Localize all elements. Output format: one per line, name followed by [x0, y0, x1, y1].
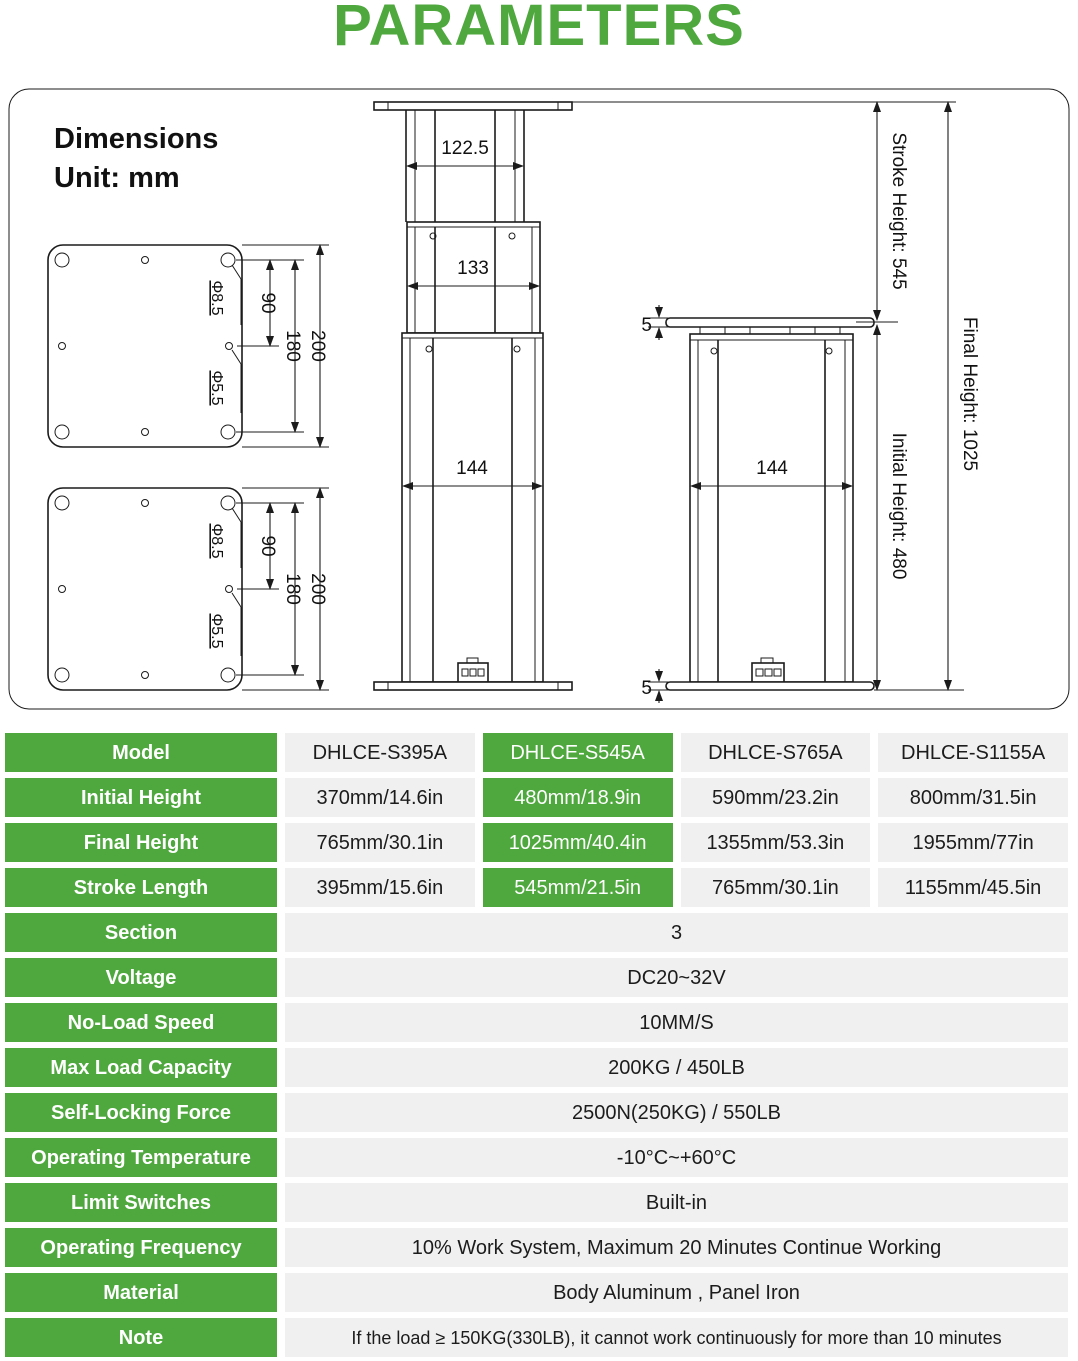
value-cell-highlighted: 545mm/21.5in — [483, 868, 673, 907]
value-cell: 765mm/30.1in — [285, 823, 475, 862]
plate-thickness-bottom-label: 5 — [641, 678, 652, 699]
diagram-unit: Unit: mm — [54, 162, 180, 194]
table-row-operating-frequency: Operating Frequency 10% Work System, Max… — [5, 1228, 1068, 1267]
model-cell: DHLCE-S1155A — [878, 733, 1068, 772]
row-label: Max Load Capacity — [5, 1048, 277, 1087]
plate-size-200-label: 200 — [307, 573, 328, 605]
row-label: No-Load Speed — [5, 1003, 277, 1042]
value-cell: 2500N(250KG) / 550LB — [285, 1093, 1068, 1132]
table-row-limit-switches: Limit Switches Built-in — [5, 1183, 1068, 1222]
value-cell-highlighted: 1025mm/40.4in — [483, 823, 673, 862]
value-cell: DC20~32V — [285, 958, 1068, 997]
stroke-height-label: Stroke Height: 545 — [888, 132, 909, 289]
hole-diameter-small-label: Φ5.5 — [208, 613, 225, 648]
hole-spacing-90-label: 90 — [257, 535, 278, 556]
value-cell: 1155mm/45.5in — [878, 868, 1068, 907]
mounting-plate-bottom-drawing: Φ8.5 Φ5.5 90 180 200 — [48, 488, 329, 690]
table-row-model: Model DHLCE-S395A DHLCE-S545A DHLCE-S765… — [5, 733, 1068, 772]
hole-spacing-180-label: 180 — [282, 573, 303, 605]
table-row-no-load-speed: No-Load Speed 10MM/S — [5, 1003, 1068, 1042]
value-cell: 1955mm/77in — [878, 823, 1068, 862]
bottom-tube-width-label: 144 — [456, 458, 488, 479]
row-label: Limit Switches — [5, 1183, 277, 1222]
table-row-section: Section 3 — [5, 913, 1068, 952]
table-row-voltage: Voltage DC20~32V — [5, 958, 1068, 997]
table-row-material: Material Body Aluminum , Panel Iron — [5, 1273, 1068, 1312]
mid-tube-width-label: 133 — [457, 258, 489, 279]
dimensions-diagram: Dimensions Unit: mm Φ8.5 Φ5.5 90 180 200… — [6, 86, 1072, 714]
table-row-note: Note If the load ≥ 150KG(330LB), it cann… — [5, 1318, 1068, 1357]
table-row-operating-temperature: Operating Temperature -10°C~+60°C — [5, 1138, 1068, 1177]
row-label: Operating Frequency — [5, 1228, 277, 1267]
table-row-stroke-length: Stroke Length 395mm/15.6in 545mm/21.5in … — [5, 868, 1068, 907]
value-cell: 395mm/15.6in — [285, 868, 475, 907]
row-label: Voltage — [5, 958, 277, 997]
collapsed-width-label: 144 — [756, 458, 788, 479]
row-label: Model — [5, 733, 277, 772]
collapsed-column-drawing: 144 5 5 — [641, 305, 874, 703]
hole-diameter-large-label: Φ8.5 — [208, 523, 225, 558]
value-cell: -10°C~+60°C — [285, 1138, 1068, 1177]
mounting-plate-top-drawing: Φ8.5 Φ5.5 90 180 200 — [48, 245, 329, 447]
hole-diameter-small-label: Φ5.5 — [208, 370, 225, 405]
value-cell: 200KG / 450LB — [285, 1048, 1068, 1087]
row-label: Stroke Length — [5, 868, 277, 907]
value-cell: 1355mm/53.3in — [681, 823, 871, 862]
value-cell: Built-in — [285, 1183, 1068, 1222]
initial-height-label: Initial Height: 480 — [888, 433, 909, 580]
value-cell: 765mm/30.1in — [681, 868, 871, 907]
value-cell: 3 — [285, 913, 1068, 952]
plate-size-200-label: 200 — [307, 330, 328, 362]
final-height-label: Final Height: 1025 — [959, 317, 980, 471]
value-cell: 590mm/23.2in — [681, 778, 871, 817]
value-cell: 370mm/14.6in — [285, 778, 475, 817]
row-label: Note — [5, 1318, 277, 1357]
model-cell: DHLCE-S395A — [285, 733, 475, 772]
page-title: PARAMETERS — [0, 0, 1078, 59]
row-label: Section — [5, 913, 277, 952]
value-cell: 800mm/31.5in — [878, 778, 1068, 817]
value-cell: 10MM/S — [285, 1003, 1068, 1042]
model-cell-highlighted: DHLCE-S545A — [483, 733, 673, 772]
model-cell: DHLCE-S765A — [681, 733, 871, 772]
row-label: Final Height — [5, 823, 277, 862]
extended-column-drawing: 122.5 133 144 — [374, 102, 572, 690]
value-cell: 10% Work System, Maximum 20 Minutes Cont… — [285, 1228, 1068, 1267]
table-row-max-load-capacity: Max Load Capacity 200KG / 450LB — [5, 1048, 1068, 1087]
hole-diameter-large-label: Φ8.5 — [208, 280, 225, 315]
table-row-self-locking-force: Self-Locking Force 2500N(250KG) / 550LB — [5, 1093, 1068, 1132]
row-label: Self-Locking Force — [5, 1093, 277, 1132]
top-tube-width-label: 122.5 — [441, 138, 489, 159]
diagram-heading: Dimensions — [54, 123, 218, 155]
note-cell: If the load ≥ 150KG(330LB), it cannot wo… — [285, 1318, 1068, 1357]
value-cell-highlighted: 480mm/18.9in — [483, 778, 673, 817]
row-label: Operating Temperature — [5, 1138, 277, 1177]
table-row-initial-height: Initial Height 370mm/14.6in 480mm/18.9in… — [5, 778, 1068, 817]
spec-table: Model DHLCE-S395A DHLCE-S545A DHLCE-S765… — [5, 733, 1068, 1357]
row-label: Initial Height — [5, 778, 277, 817]
row-label: Material — [5, 1273, 277, 1312]
table-row-final-height: Final Height 765mm/30.1in 1025mm/40.4in … — [5, 823, 1068, 862]
hole-spacing-180-label: 180 — [282, 330, 303, 362]
plate-thickness-top-label: 5 — [641, 315, 652, 336]
hole-spacing-90-label: 90 — [257, 292, 278, 313]
value-cell: Body Aluminum , Panel Iron — [285, 1273, 1068, 1312]
